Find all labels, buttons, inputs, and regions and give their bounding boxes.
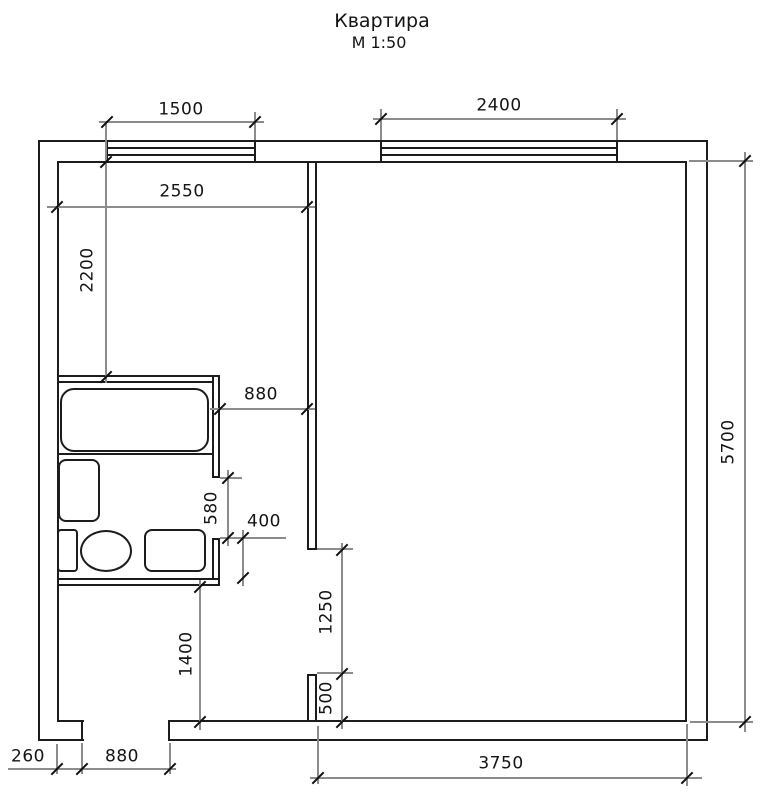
ext-doorway-top <box>317 548 353 550</box>
bathroom-wall-bottom <box>57 578 220 586</box>
dim-label-bath-passage: 880 <box>244 387 278 404</box>
main-window-jamb-right <box>616 140 618 163</box>
partition-wall-main <box>307 161 317 550</box>
dim-line-doorway-and-stub <box>341 543 343 729</box>
dim-label-doorway: 1250 <box>319 589 336 634</box>
entry-jamb-left <box>81 720 83 741</box>
left-window-jamb-right <box>254 140 256 163</box>
dim-line-entry <box>8 768 176 770</box>
bathroom-wall-top <box>57 375 220 383</box>
dim-label-main-room-width: 3750 <box>478 756 523 773</box>
dim-line-main-room-depth <box>744 152 746 732</box>
floor-plan: Квартира М 1:50 <box>0 0 763 800</box>
sink <box>58 459 100 522</box>
bathtub-platform-edge <box>57 453 212 455</box>
ext-doorway-bottom <box>317 672 353 674</box>
dim-label-wall-stub: 500 <box>319 681 336 715</box>
toilet-bowl <box>80 530 132 572</box>
dim-label-entry-door: 880 <box>105 749 139 766</box>
dim-label-left-room-width: 2550 <box>159 184 204 201</box>
ext-main-window-right <box>616 109 618 140</box>
drawing-title: Квартира <box>334 10 430 32</box>
dim-line-left-room-width <box>47 206 315 208</box>
left-window-glazing-2 <box>106 154 256 156</box>
dim-label-left-room-depth: 2200 <box>80 247 97 292</box>
bathtub <box>60 388 209 452</box>
washing-machine <box>144 529 206 572</box>
entry-door-opening <box>84 716 168 746</box>
toilet-tank <box>57 529 78 572</box>
main-window-glazing-1 <box>380 147 618 149</box>
entry-jamb-right <box>168 720 170 741</box>
bathroom-wall-right-upper <box>212 375 220 478</box>
dim-label-hall-depth: 1400 <box>179 631 196 676</box>
drawing-scale: М 1:50 <box>352 33 407 52</box>
main-window-glazing-2 <box>380 154 618 156</box>
ext-left-window-right <box>254 112 256 140</box>
dim-line-main-window <box>373 118 626 120</box>
main-window-jamb-left <box>380 140 382 163</box>
dim-label-entry-jamb: 260 <box>11 749 45 766</box>
dim-label-bath-door: 580 <box>204 491 221 525</box>
ext-bath-door-top <box>220 477 242 479</box>
dim-label-main-window: 2400 <box>476 98 521 115</box>
dim-label-bath-door-offset: 400 <box>247 514 281 531</box>
dim-label-main-room-depth: 5700 <box>721 419 738 464</box>
dim-line-main-room-width <box>310 777 702 779</box>
left-window-glazing-1 <box>106 147 256 149</box>
dim-line-bath-passage <box>210 408 315 410</box>
partition-wall-stub <box>307 674 317 722</box>
ext-main-window-left <box>380 109 382 140</box>
dim-label-left-window: 1500 <box>158 102 203 119</box>
dim-line-hall-depth <box>199 580 201 730</box>
dim-line-left-window <box>99 121 264 123</box>
